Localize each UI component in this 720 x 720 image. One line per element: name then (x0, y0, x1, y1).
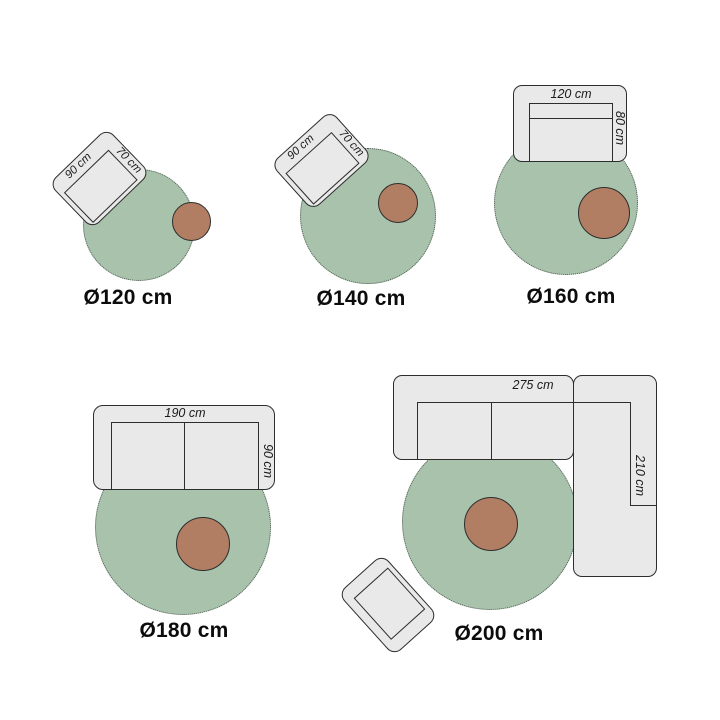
seat-line-top (417, 402, 630, 403)
dim-label-width: 120 cm (529, 88, 613, 102)
side-table-160 (578, 187, 630, 239)
dim-label-width: 275 cm (433, 379, 633, 393)
cushion-divider (184, 422, 185, 489)
caption-160: Ø160 cm (496, 285, 646, 309)
corner-sofa: 275 cm 210 cm (393, 375, 657, 577)
backrest-line (529, 118, 613, 119)
side-table-120 (172, 202, 211, 241)
rug-size-diagram: 90 cm 70 cm Ø120 cm 90 cm 70 cm Ø140 cm … (0, 0, 720, 720)
dim-label-depth: 90 cm (259, 431, 274, 491)
sofa-190: 190 cm 90 cm (93, 405, 275, 490)
cushion-divider (491, 402, 492, 460)
dim-label-depth: 210 cm (632, 430, 646, 520)
sofa-seat (111, 422, 259, 489)
chaise-backrest-line (630, 402, 631, 505)
sofa-120: 120 cm 80 cm (513, 85, 627, 162)
caption-120: Ø120 cm (53, 286, 203, 310)
sofa-seat (529, 103, 613, 161)
armrest-line-left (417, 402, 418, 460)
side-table-180 (176, 517, 230, 571)
caption-200: Ø200 cm (424, 622, 574, 646)
side-table-140 (378, 183, 418, 223)
caption-140: Ø140 cm (286, 287, 436, 311)
dim-label-depth: 80 cm (613, 106, 626, 151)
ottoman-seat (354, 567, 426, 639)
caption-180: Ø180 cm (109, 619, 259, 643)
dim-label-width: 190 cm (111, 407, 259, 421)
